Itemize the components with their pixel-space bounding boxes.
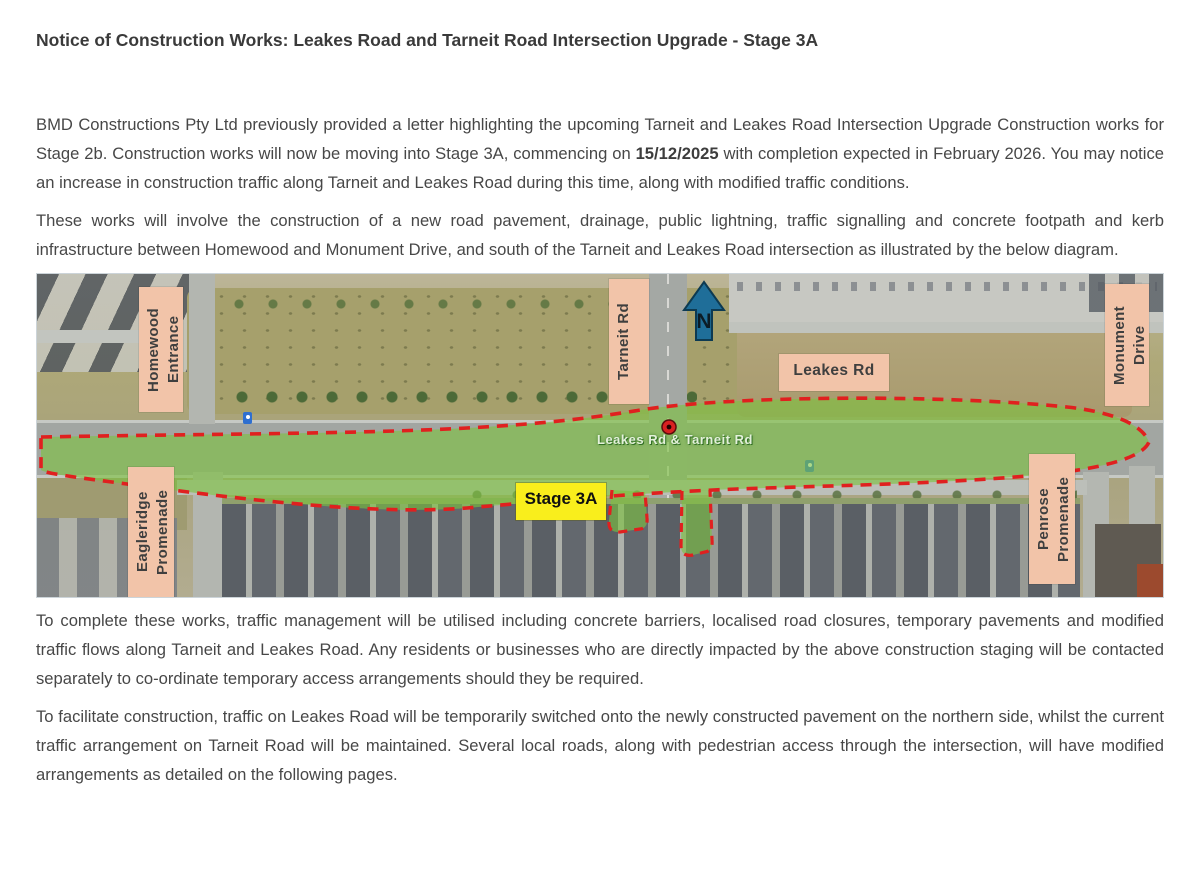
paragraph-traffic-management: To complete these works, traffic managem… <box>36 606 1164 693</box>
label-monument-drive: Monument Drive <box>1105 284 1149 406</box>
label-penrose-promenade: Penrose Promenade <box>1029 454 1075 584</box>
north-arrow: N <box>682 280 726 344</box>
commencement-date: 15/12/2025 <box>636 144 719 163</box>
paragraph-traffic-switch: To facilitate construction, traffic on L… <box>36 702 1164 789</box>
document-page: Notice of Construction Works: Leakes Roa… <box>0 0 1200 789</box>
intersection-pin-center <box>667 425 672 430</box>
north-letter: N <box>694 310 714 334</box>
paragraph-works-scope: These works will involve the constructio… <box>36 206 1164 264</box>
zone-highlight-south-east <box>681 490 712 555</box>
paragraph-intro: BMD Constructions Pty Ltd previously pro… <box>36 110 1164 197</box>
road-caption: Leakes Rd & Tarneit Rd <box>597 432 777 447</box>
construction-area-map: N Leakes Rd & Tarneit Rd Homewood Entran… <box>36 273 1164 598</box>
label-homewood-entrance: Homewood Entrance <box>139 287 183 412</box>
label-eagleridge-promenade: Eagleridge Promenade <box>128 467 174 597</box>
label-tarneit-rd: Tarneit Rd <box>609 279 649 404</box>
stage-3a-badge: Stage 3A <box>516 483 606 520</box>
label-leakes-rd: Leakes Rd <box>779 354 889 391</box>
document-title: Notice of Construction Works: Leakes Roa… <box>36 28 1164 52</box>
